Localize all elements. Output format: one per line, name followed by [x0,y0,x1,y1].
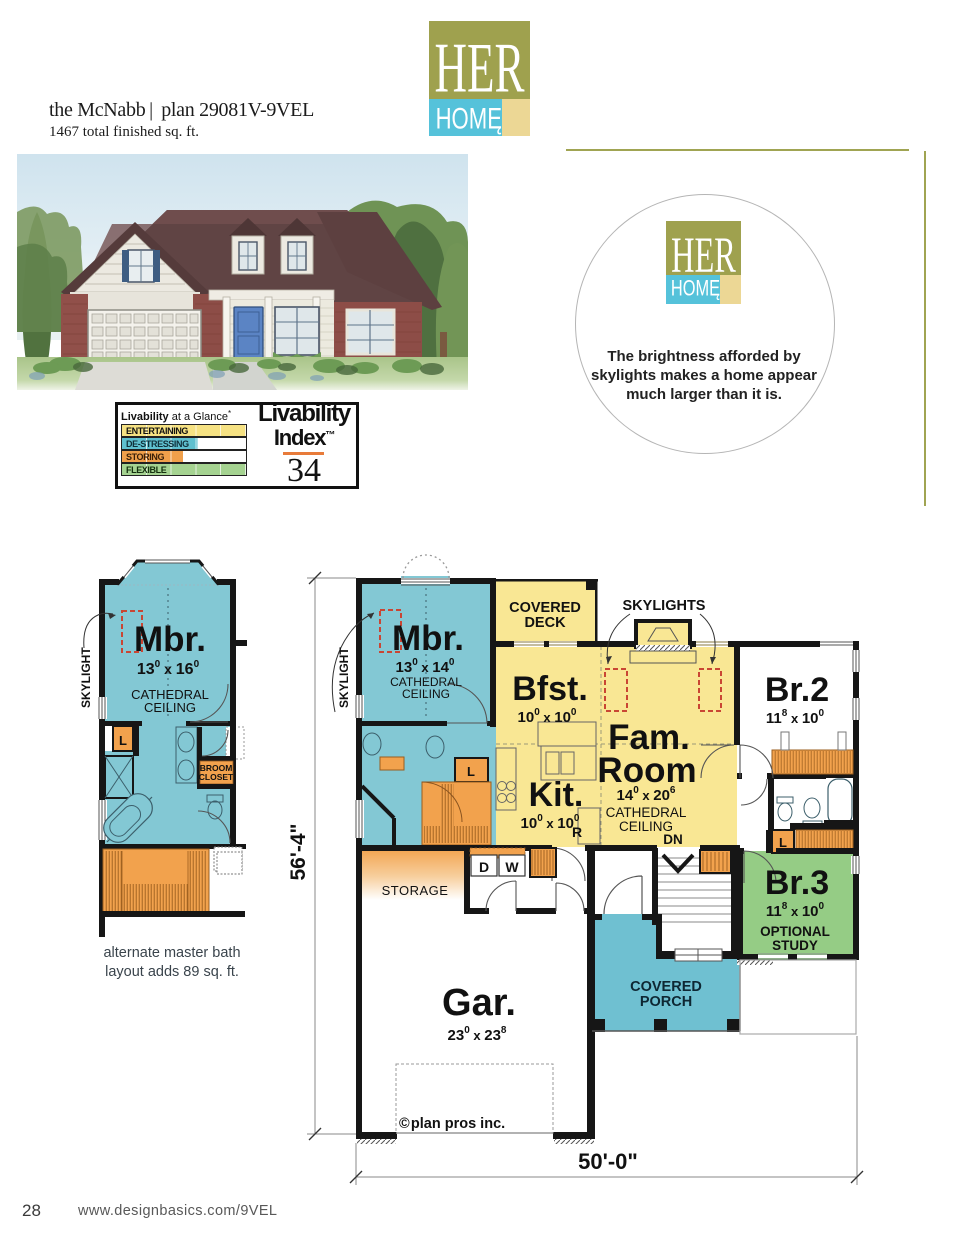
svg-text:CEILING: CEILING [144,700,196,715]
svg-text:130 x 160: 130 x 160 [137,659,200,678]
svg-text:Mbr.: Mbr. [392,619,464,658]
svg-text:STUDY: STUDY [772,938,818,953]
svg-text:R: R [572,824,582,840]
svg-text:Kit.: Kit. [529,776,584,814]
svg-text:CLOSET: CLOSET [199,772,234,782]
svg-text:DN: DN [663,832,683,847]
svg-text:SKYLIGHT: SKYLIGHT [79,647,93,708]
svg-text:CATHEDRAL: CATHEDRAL [606,805,687,820]
svg-text:DECK: DECK [524,615,566,631]
svg-text:SKYLIGHT: SKYLIGHT [337,647,351,708]
svg-text:W: W [505,859,519,875]
svg-text:PORCH: PORCH [640,994,692,1010]
svg-text:Mbr.: Mbr. [134,620,206,659]
svg-text:Gar.: Gar. [442,982,516,1024]
svg-text:L: L [467,764,475,779]
svg-text:L: L [119,733,127,748]
svg-text:layout adds 89 sq. ft.: layout adds 89 sq. ft. [105,964,239,980]
svg-text:OPTIONAL: OPTIONAL [760,924,830,939]
svg-text:118 x 100: 118 x 100 [766,901,825,920]
svg-text:D: D [479,859,489,875]
svg-text:130 x 140: 130 x 140 [396,657,455,676]
svg-text:COVERED: COVERED [509,600,581,616]
svg-text:CEILING: CEILING [402,687,450,701]
svg-text:SKYLIGHTS: SKYLIGHTS [623,598,706,614]
svg-text:Room: Room [597,751,696,790]
svg-text:50'-0": 50'-0" [578,1149,638,1174]
svg-text:Bfst.: Bfst. [512,670,588,708]
svg-text:100 x 100: 100 x 100 [518,707,577,726]
svg-text:Br.2: Br.2 [765,671,829,709]
svg-text:L: L [779,835,787,850]
svg-text:Br.3: Br.3 [765,864,829,902]
svg-text:alternate master bath: alternate master bath [103,945,240,961]
svg-text:118 x 100: 118 x 100 [766,708,825,727]
svg-text:100 x 100: 100 x 100 [521,813,580,832]
svg-text:COVERED: COVERED [630,979,702,995]
svg-text:140 x 206: 140 x 206 [617,785,676,804]
svg-text:STORAGE: STORAGE [382,883,449,898]
svg-text:56'-4": 56'-4" [287,824,310,881]
svg-text:230 x 238: 230 x 238 [448,1025,507,1044]
svg-text:© plan pros inc.: © plan pros inc. [399,1116,505,1132]
